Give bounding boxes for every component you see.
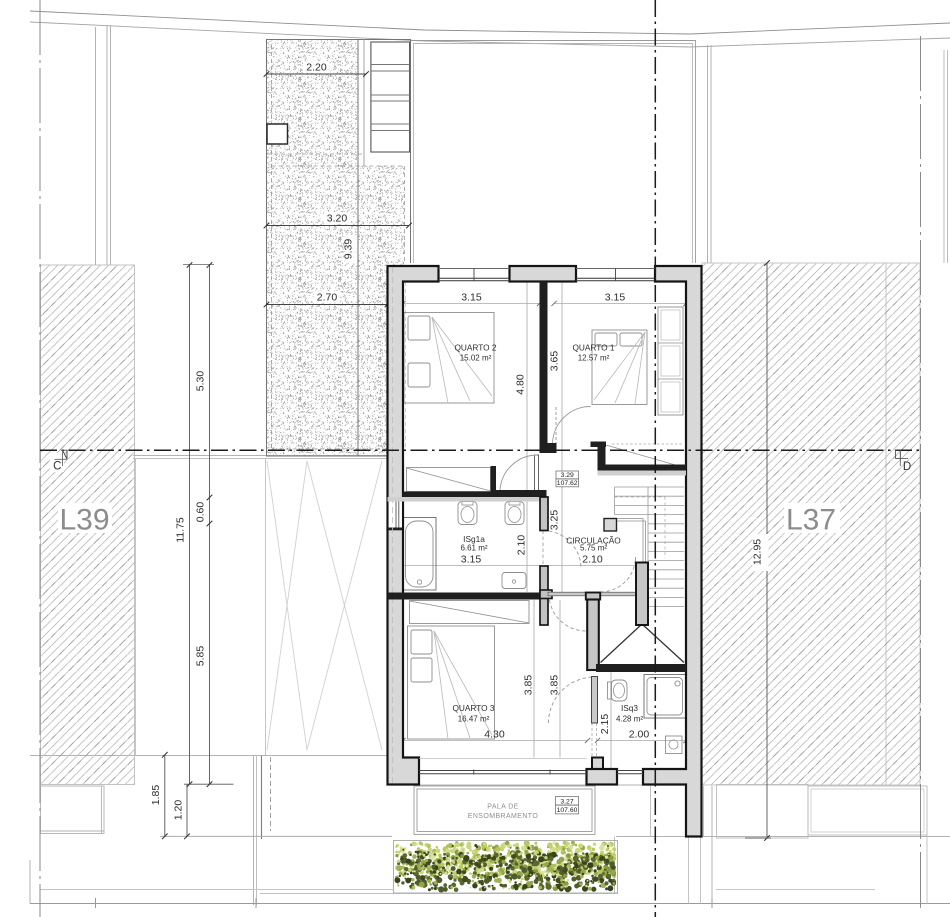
svg-text:2.20: 2.20 xyxy=(306,62,327,74)
svg-text:9.39: 9.39 xyxy=(343,239,355,260)
svg-text:6.61 m²: 6.61 m² xyxy=(460,544,487,553)
svg-text:11.75: 11.75 xyxy=(175,517,187,543)
svg-text:3.25: 3.25 xyxy=(549,510,561,531)
svg-text:L39: L39 xyxy=(59,504,109,537)
svg-text:0.60: 0.60 xyxy=(195,502,207,523)
svg-text:3.65: 3.65 xyxy=(549,351,561,372)
svg-text:4.30: 4.30 xyxy=(484,729,505,741)
svg-text:3.15: 3.15 xyxy=(461,292,482,304)
svg-text:15.02 m²: 15.02 m² xyxy=(460,354,492,363)
svg-text:12.57 m²: 12.57 m² xyxy=(578,354,610,363)
svg-text:16.47 m²: 16.47 m² xyxy=(458,715,490,724)
svg-text:3.29: 3.29 xyxy=(561,472,574,479)
svg-text:3.15: 3.15 xyxy=(605,292,626,304)
svg-text:ENSOMBRAMENTO: ENSOMBRAMENTO xyxy=(468,813,539,820)
svg-text:QUARTO 2: QUARTO 2 xyxy=(454,343,496,353)
svg-text:12.95: 12.95 xyxy=(752,539,764,565)
svg-text:5.85: 5.85 xyxy=(195,646,207,667)
svg-text:3.85: 3.85 xyxy=(523,675,535,696)
svg-text:PALA DE: PALA DE xyxy=(487,804,518,811)
svg-text:D: D xyxy=(903,461,911,473)
svg-text:C: C xyxy=(53,460,61,472)
svg-text:3.15: 3.15 xyxy=(461,554,482,566)
svg-text:2.15: 2.15 xyxy=(599,714,611,735)
svg-text:4.80: 4.80 xyxy=(515,374,527,395)
svg-text:2.70: 2.70 xyxy=(317,292,338,304)
svg-text:5.75 m²: 5.75 m² xyxy=(580,544,607,553)
svg-text:1.20: 1.20 xyxy=(173,800,185,821)
svg-text:3.20: 3.20 xyxy=(327,213,348,225)
svg-text:ISg1a: ISg1a xyxy=(463,534,485,544)
svg-text:2.10: 2.10 xyxy=(582,554,603,566)
svg-text:2.00: 2.00 xyxy=(629,729,650,741)
svg-text:2.10: 2.10 xyxy=(516,535,528,556)
svg-text:L37: L37 xyxy=(786,504,836,537)
svg-text:ISq3: ISq3 xyxy=(621,703,638,713)
svg-text:4.28 m²: 4.28 m² xyxy=(616,715,643,724)
svg-text:3.27: 3.27 xyxy=(560,798,573,805)
svg-text:5.30: 5.30 xyxy=(195,371,207,392)
svg-text:1.85: 1.85 xyxy=(150,785,162,806)
svg-text:107.60: 107.60 xyxy=(557,807,578,814)
svg-text:107.62: 107.62 xyxy=(557,480,578,487)
svg-text:QUARTO 3: QUARTO 3 xyxy=(452,703,494,713)
svg-text:QUARTO 1: QUARTO 1 xyxy=(572,343,614,353)
svg-text:3.85: 3.85 xyxy=(549,675,561,696)
